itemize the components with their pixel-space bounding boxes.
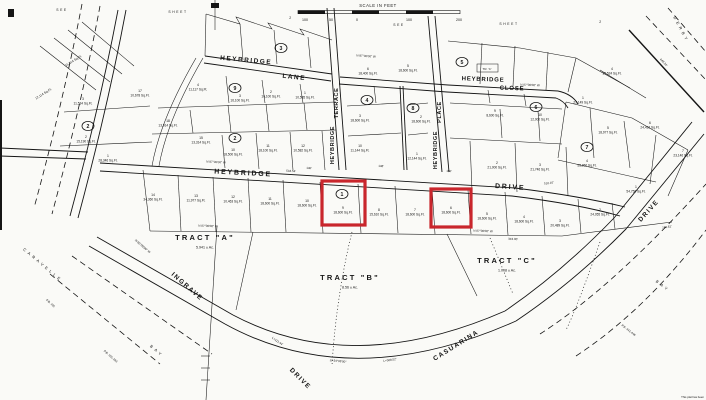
tract-label: TRACT "A" — [175, 233, 235, 242]
lot-sqft: 18,524 Sq.Ft. — [602, 72, 621, 76]
lot-line — [632, 118, 688, 150]
lot-sqft: 18,977 Sq.Ft. — [598, 131, 617, 135]
lot-line — [470, 141, 472, 190]
lot-number: 2 — [496, 161, 498, 165]
dimension-label: N 60°00'00" W — [134, 238, 151, 254]
lot-sqft: 34,360 Sq.Ft. — [143, 198, 162, 202]
plat-svg: SCALE IN FEET100500100200SEESHEET2SEESHE… — [0, 0, 706, 400]
lot-number: 3 — [539, 163, 541, 167]
dimension-label: TR. 'C' — [483, 67, 492, 71]
lot-line — [612, 203, 615, 229]
lot-sqft: 15,190 Sq.Ft. — [76, 140, 95, 144]
dimension-label: P.B. 101-103 — [103, 349, 119, 363]
lot-line — [300, 84, 303, 103]
block-number: 4 — [366, 98, 369, 104]
scale-bar-tick: 200 — [456, 18, 462, 22]
lot-line — [60, 142, 152, 146]
lot-number: 1 — [304, 91, 306, 95]
tract-acreage: 5.941 ± Ac. — [196, 246, 214, 250]
lot-number: 14 — [151, 193, 155, 197]
lot-sqft: 24,416 Sq.Ft. — [640, 126, 659, 130]
sheet-note: SHEET — [499, 22, 518, 26]
lot-line — [374, 86, 376, 103]
lot-line — [304, 103, 307, 130]
lot-number: 8 — [378, 208, 380, 212]
lot-number: 11 — [266, 144, 270, 148]
lot-number: 2 — [420, 115, 422, 119]
lot-sqft: 18,600 Sq.Ft. — [260, 202, 279, 206]
boundary-dash — [576, 230, 706, 356]
lot-line — [228, 105, 231, 132]
lot-number: 4 — [586, 159, 588, 163]
scale-bar-segment — [298, 11, 325, 14]
boundary-line — [629, 30, 704, 112]
corner-note: This plat has been — [681, 395, 704, 399]
dimension-label: 140' — [306, 166, 312, 170]
lot-sqft: 28,346 Sq.Ft. — [98, 159, 117, 163]
lot-line — [226, 76, 229, 103]
street-label: DRIVE — [288, 367, 312, 391]
sheet-note: SEE — [393, 23, 405, 27]
tract-dotted-line — [490, 238, 513, 294]
lot-line — [450, 103, 562, 109]
lot-number: 15 — [199, 136, 203, 140]
lot-sqft: 24,055 Sq.Ft. — [590, 213, 609, 217]
lot-line — [262, 80, 265, 103]
lot-number: 6 — [367, 67, 369, 71]
street-label: HEYBRIDGE — [433, 131, 439, 169]
road-line — [0, 156, 86, 159]
lot-number: 12 — [231, 195, 235, 199]
lot-number: 7 — [682, 149, 684, 153]
dimension-label: 343.80' — [508, 237, 518, 241]
road-line — [78, 10, 126, 218]
lot-number: 4 — [523, 215, 525, 219]
lot-line — [650, 135, 656, 184]
lot-number: 3 — [359, 114, 361, 118]
lot-sqft: 18,500 Sq.Ft. — [223, 153, 242, 157]
road-line — [70, 10, 118, 216]
lot-line — [513, 46, 515, 86]
block-number: 6 — [535, 105, 538, 111]
lot-sqft: 18,600 Sq.Ft. — [398, 69, 417, 73]
plat-map: SCALE IN FEET100500100200SEESHEET2SEESHE… — [0, 0, 706, 400]
lot-number: 5 — [407, 64, 409, 68]
dimension-label: N 87°00'00" W — [206, 159, 226, 164]
street-label: HEYBRIDGE — [462, 76, 505, 83]
lot-line — [236, 232, 253, 310]
block-number: 8 — [412, 106, 415, 112]
lot-line — [578, 199, 581, 233]
lot-sqft: 15,814 Sq.Ft. — [64, 54, 82, 68]
lot-number: 10 — [305, 199, 309, 203]
scale-bar-tick: 100 — [302, 18, 308, 22]
road-line — [0, 148, 88, 152]
dimension-label: 448.24' — [659, 57, 669, 67]
lot-line — [308, 37, 311, 68]
lot-line — [152, 130, 336, 134]
lot-sqft: 18,600 Sq.Ft. — [477, 217, 496, 221]
area-label: BAY — [655, 279, 671, 293]
street-label: LANE — [282, 73, 306, 82]
lot-sqft: 16,100 Sq.Ft. — [230, 99, 249, 103]
dimension-label: P.B. 101 — [45, 298, 56, 309]
lot-sqft: 16,100 Sq.Ft. — [261, 95, 280, 99]
lot-number: 4 — [611, 67, 613, 71]
scale-bar-segment — [406, 11, 433, 14]
lot-line — [558, 160, 656, 182]
lot-number: 2 — [270, 90, 272, 94]
lot-number: 18 — [166, 119, 170, 123]
lot-sqft: 18,600 Sq.Ft. — [405, 213, 424, 217]
tract-dotted-line — [332, 232, 352, 366]
lot-sqft: 8,600 Sq.Ft. — [486, 114, 503, 118]
block-number: 5 — [461, 60, 464, 66]
block-number: 2 — [234, 136, 237, 142]
lot-sqft: 22,149 Sq.Ft. — [573, 101, 592, 105]
lot-sqft: 54,756 Sq.Ft. — [626, 190, 645, 194]
block-number: 3 — [280, 46, 283, 52]
lot-line — [240, 24, 243, 60]
lot-line — [152, 58, 196, 166]
lot-line — [348, 133, 401, 136]
lot-line — [450, 138, 562, 144]
dimension-label: 534.54' — [286, 169, 296, 174]
lot-sqft: 18,600 Sq.Ft. — [441, 211, 460, 215]
lot-number: 10 — [358, 144, 362, 148]
lot-sqft: 11,534 Sq.Ft. — [74, 102, 93, 106]
dimension-label: 150' — [446, 169, 452, 173]
lot-line — [68, 30, 122, 74]
area-label: DERBY — [672, 15, 690, 43]
lot-number: 9 — [494, 109, 496, 113]
lot-number: 10 — [231, 148, 235, 152]
block-number: 2 — [87, 124, 90, 130]
lot-number: 17 — [138, 89, 142, 93]
lot-sqft: 11,144 Sq.Ft. — [351, 149, 370, 153]
boundary-dash — [646, 16, 706, 80]
street-label: HEYBRIDGE — [214, 168, 272, 178]
lot-sqft: 18,600 Sq.Ft. — [514, 220, 533, 224]
dimension-label: L=568.52' — [383, 357, 397, 363]
lot-number: 2 — [85, 135, 87, 139]
lot-line — [190, 110, 193, 133]
lot-line — [395, 186, 398, 233]
lot-line — [64, 106, 150, 112]
lot-number: 3 — [239, 94, 241, 98]
tract-acreage: 8.56 ± Ac. — [342, 286, 358, 290]
lot-line — [448, 41, 576, 58]
lot-sqft: 10,463 Sq.Ft. — [223, 200, 242, 204]
lot-line — [248, 178, 251, 232]
block-number: 1 — [341, 192, 344, 198]
scale-bar-tick: 50 — [329, 18, 333, 22]
lot-line — [266, 104, 269, 131]
sheet-note: 2 — [289, 16, 293, 20]
lot-sqft: 18,600 Sq.Ft. — [297, 204, 316, 208]
sheet-note: SHEET — [168, 10, 187, 14]
sheet-note: SEE — [56, 8, 68, 12]
street-label: PLACE — [437, 101, 443, 123]
dimension-label: N 87°00'00" W — [473, 229, 493, 234]
dimension-label: Δ=34°06'00" — [330, 358, 347, 364]
section-mark — [211, 3, 219, 8]
lot-sqft: 11,977 Sq.Ft. — [187, 199, 206, 203]
lot-sqft: 12,114 Sq.Ft. — [34, 87, 52, 100]
lot-sqft: 18,600 Sq.Ft. — [350, 119, 369, 123]
dimension-label: N 87°00'00" W — [198, 224, 218, 229]
scale-bar-segment — [352, 11, 379, 14]
lot-sqft: 11,117 Sq.Ft. — [189, 88, 208, 92]
lot-sqft: 12,000 Sq.Ft. — [530, 118, 549, 122]
dimension-label: N 87°00'00" W — [520, 83, 540, 88]
lot-line — [54, 38, 110, 82]
lot-line — [347, 103, 400, 106]
street-label: INGRAVE — [170, 271, 205, 302]
lot-sqft: 18,600 Sq.Ft. — [333, 211, 352, 215]
lot-sqft: 20,489 Sq.Ft. — [550, 224, 569, 228]
street-label: HEYBRIDGE — [220, 55, 273, 67]
lot-line — [283, 180, 286, 232]
lot-number: 7 — [414, 208, 416, 212]
lot-line — [558, 102, 566, 158]
lot-line — [488, 90, 490, 103]
boundary-dash — [34, 4, 82, 208]
tract-acreage: 1.008 ± Ac. — [498, 269, 516, 273]
lot-sqft: 13,314 Sq.Ft. — [191, 141, 210, 145]
lot-sqft: 10,678 Sq.Ft. — [130, 94, 149, 98]
lot-sqft: 58,866 Sq.Ft. — [577, 164, 596, 168]
lot-line — [158, 102, 336, 108]
road-line — [556, 98, 568, 108]
lot-line — [322, 131, 325, 170]
lot-number: 1 — [635, 185, 637, 189]
lot-number: 2 — [599, 208, 601, 212]
lot-line — [408, 133, 428, 135]
road-line — [89, 246, 225, 324]
lot-number: 10 — [538, 113, 542, 117]
area-label: CARAVELLE — [22, 247, 64, 283]
lot-number: 4 — [197, 83, 199, 87]
lot-number: 1 — [107, 154, 109, 158]
street-label: DRIVE — [495, 183, 526, 192]
lot-line — [178, 175, 181, 231]
dimension-label: 148' — [378, 164, 384, 168]
lot-number: 1 — [416, 152, 418, 156]
lot-number: 3 — [559, 219, 561, 223]
lot-line — [624, 121, 630, 168]
lot-sqft: 18,400 Sq.Ft. — [358, 72, 377, 76]
dimension-label: 744.61' — [662, 224, 673, 230]
corner-mark — [8, 9, 14, 17]
lot-line — [447, 234, 477, 296]
lot-line — [206, 226, 217, 400]
lot-sqft: 18,600 Sq.Ft. — [411, 120, 430, 124]
lot-number: 11 — [268, 197, 272, 201]
lot-line — [205, 14, 206, 56]
lot-number: 6 — [649, 121, 651, 125]
lot-number: 5 — [607, 126, 609, 130]
lot-number: 12 — [301, 144, 305, 148]
lot-sqft: 15,610 Sq.Ft. — [369, 213, 388, 217]
lot-line — [159, 58, 203, 166]
street-label: HEYBRIDGE — [330, 126, 336, 164]
scale-bar-tick: 100 — [406, 18, 412, 22]
lot-line — [546, 52, 548, 90]
block-number: 7 — [586, 145, 589, 151]
lot-sqft: 10,582 Sq.Ft. — [293, 149, 312, 153]
lot-sqft: 23,146 Sq.Ft. — [673, 154, 692, 158]
lot-line — [206, 14, 332, 40]
lot-line — [568, 58, 576, 92]
lot-number: 6 — [450, 206, 452, 210]
highlight-box — [322, 181, 365, 225]
lot-line — [524, 94, 526, 106]
lot-number: 9 — [342, 206, 344, 210]
area-label: BAY — [149, 344, 165, 359]
street-label: TERRACE — [334, 88, 340, 119]
lot-sqft: 21,000 Sq.Ft. — [487, 166, 506, 170]
sheet-note: 2 — [599, 20, 603, 24]
scale-bar-tick: 0 — [356, 18, 358, 22]
lot-sqft: 13,914 Sq.Ft. — [158, 124, 177, 128]
lot-line — [505, 192, 508, 235]
block-number: 9 — [234, 86, 237, 92]
lot-number: 13 — [194, 194, 198, 198]
dimension-label: P.B. 441-446 — [621, 323, 637, 337]
lot-line — [542, 196, 545, 235]
lot-line — [566, 147, 568, 196]
lot-number: 1 — [582, 96, 584, 100]
tract-label: TRACT "B" — [320, 273, 380, 282]
lot-sqft: 21,746 Sq.Ft. — [530, 168, 549, 172]
lot-sqft: 10,585 Sq.Ft. — [295, 96, 314, 100]
lot-number: 3 — [82, 97, 84, 101]
lot-sqft: 12,144 Sq.Ft. — [407, 157, 426, 161]
scan-edge-mark — [0, 100, 2, 230]
dimension-label: N 87°00'00" W — [356, 53, 376, 58]
tract-label: TRACT "C" — [477, 256, 537, 265]
lot-number: 5 — [486, 212, 488, 216]
dimension-label: 510.10' — [544, 180, 555, 185]
scale-bar-title: SCALE IN FEET — [359, 3, 396, 8]
tract-dotted-line — [566, 242, 600, 330]
lot-sqft: 18,100 Sq.Ft. — [258, 149, 277, 153]
